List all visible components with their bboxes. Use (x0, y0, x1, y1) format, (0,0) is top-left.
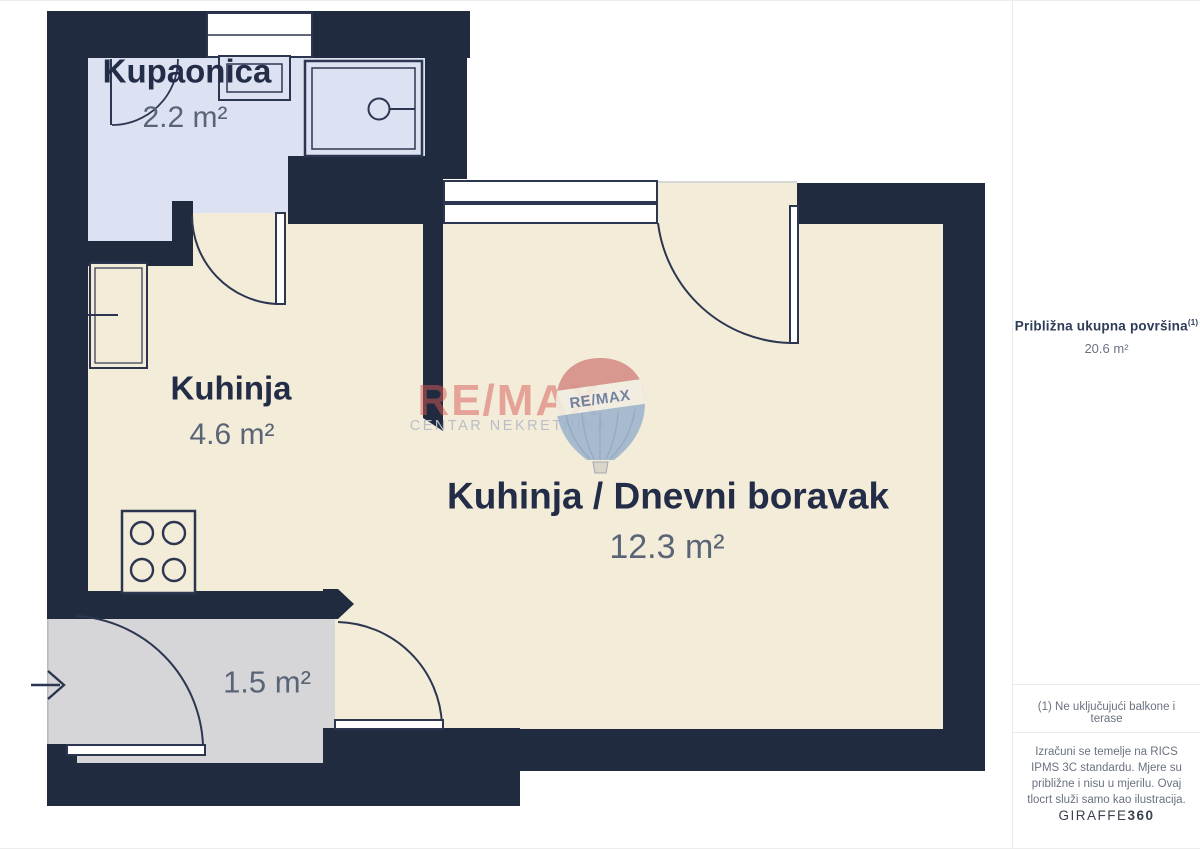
label-bathroom-name: Kupaonica (103, 55, 272, 88)
total-area-value: 20.6 m² (1013, 341, 1200, 356)
wall-left (47, 11, 88, 616)
sidebar-divider-2 (1013, 732, 1200, 733)
label-kitchen-area: 4.6 m² (189, 420, 274, 450)
bathroom-window (207, 13, 312, 57)
total-area-label: Približna ukupna površina(1) (1013, 318, 1200, 334)
floorplan-page: RE/MAX CENTAR NEKRETNINA (0, 0, 1200, 849)
wall-above-entry (47, 591, 323, 619)
sidebar-footnote: (1) Ne uključujući balkone i terase (1021, 701, 1192, 725)
wall-below-shower (288, 156, 425, 224)
giraffe360-suffix: 360 (1127, 808, 1154, 823)
label-kitchen-name: Kuhinja (171, 372, 292, 405)
info-sidebar: Približna ukupna površina(1) 20.6 m² (1)… (1012, 1, 1200, 849)
wall-bottom-living (520, 729, 985, 771)
radiator (88, 263, 147, 368)
giraffe360-logo: GIRAFFE360 (1013, 808, 1200, 823)
wall-right-of-shower (425, 11, 467, 179)
balloon-basket (593, 462, 608, 473)
living-window (444, 181, 657, 223)
wall-bath-stub (172, 201, 193, 266)
wall-right (943, 183, 985, 771)
sidebar-disclaimer: Izračuni se temelje na RICS IPMS 3C stan… (1027, 745, 1186, 808)
total-area-note-ref: (1) (1188, 318, 1198, 327)
wall-bottom-entry (47, 763, 367, 806)
total-area-label-text: Približna ukupna površina (1015, 319, 1188, 334)
label-bathroom-area: 2.2 m² (142, 103, 227, 133)
stove (122, 511, 195, 593)
label-living-name: Kuhinja / Dnevni boravak (447, 478, 889, 515)
label-entry-area: 1.5 m² (223, 667, 311, 698)
giraffe360-name: GIRAFFE (1058, 808, 1127, 823)
label-living-area: 12.3 m² (609, 530, 724, 564)
sidebar-divider-1 (1013, 684, 1200, 685)
